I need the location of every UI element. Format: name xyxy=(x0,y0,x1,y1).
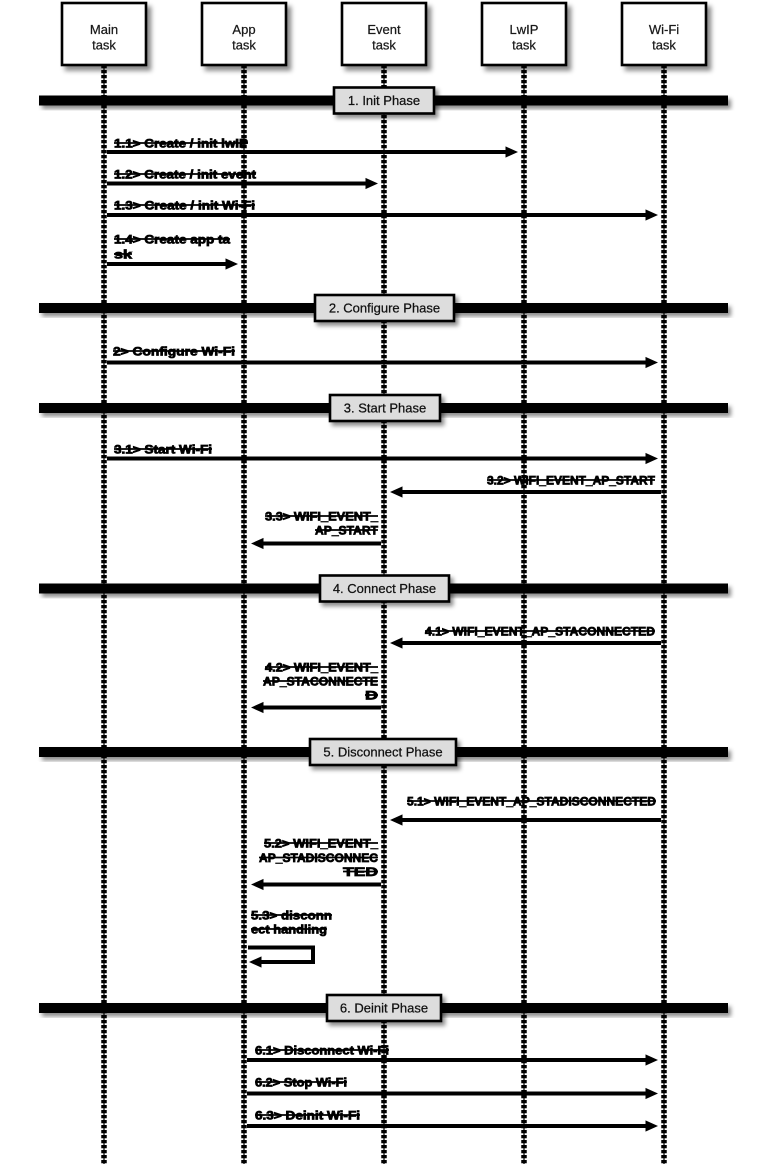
svg-text:2. Configure Phase: 2. Configure Phase xyxy=(329,301,440,316)
svg-text:task: task xyxy=(372,38,396,53)
svg-text:task: task xyxy=(652,38,676,53)
svg-text:task: task xyxy=(512,38,536,53)
svg-text:4. Connect Phase: 4. Connect Phase xyxy=(333,581,436,596)
svg-text:App: App xyxy=(232,22,255,37)
svg-text:Wi-Fi: Wi-Fi xyxy=(649,22,679,37)
svg-text:3. Start Phase: 3. Start Phase xyxy=(344,401,426,416)
svg-text:LwIP: LwIP xyxy=(510,22,539,37)
svg-text:Event: Event xyxy=(367,22,401,37)
svg-text:Main: Main xyxy=(90,22,118,37)
svg-text:task: task xyxy=(92,38,116,53)
svg-text:1. Init Phase: 1. Init Phase xyxy=(348,93,420,108)
svg-text:6. Deinit Phase: 6. Deinit Phase xyxy=(340,1001,428,1016)
svg-text:task: task xyxy=(232,38,256,53)
svg-text:5. Disconnect Phase: 5. Disconnect Phase xyxy=(323,745,442,760)
